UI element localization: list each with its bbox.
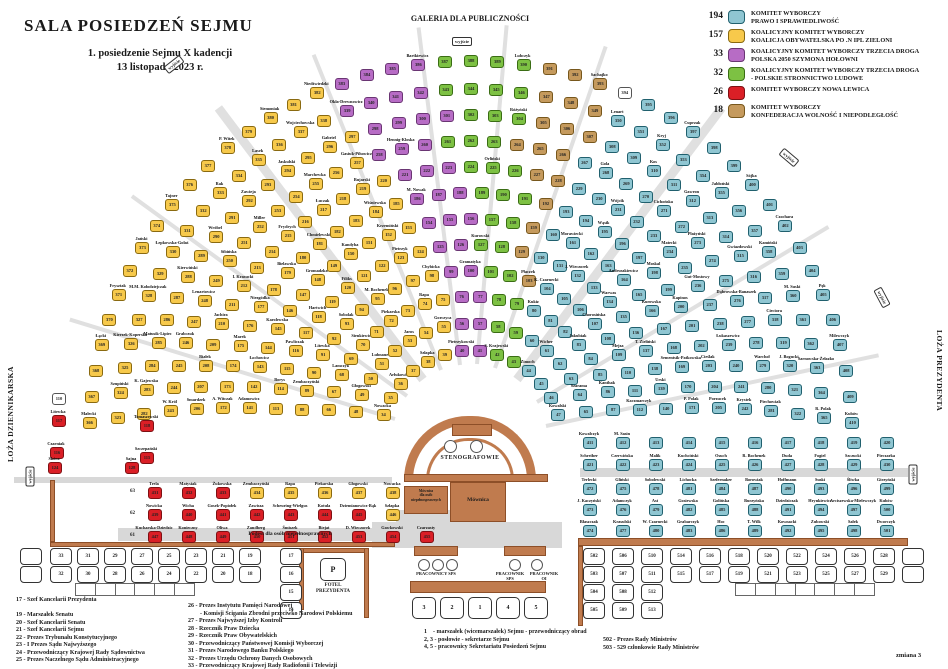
government-notes: 502 - Prezes Rady Ministrów 503 - 529 cz… [603,637,699,652]
seat: 170 [681,381,695,393]
seat-name-label: T. Zieliński [635,339,656,344]
seat-name-label: Kaczmarczyk [626,398,651,403]
seat-name-label: Szczucki [845,453,861,458]
seat: 221 [398,169,412,181]
seat: 89 [300,385,314,397]
legend-label: KOMITET WYBORCZY NOWA LEWICA [751,86,869,94]
seat: 371 [112,289,126,301]
seat: 190 [496,189,510,201]
seat-name-label: Orliński [485,156,500,161]
seat-name-label: Karolewska [266,317,288,322]
seat: 392 [568,69,582,81]
government-seat-box: 528 [873,548,895,565]
seat-name-label: D. Wieczorek [346,525,371,530]
seat: 187 [432,189,446,201]
sejm-seating-chart: SALA POSIEDZEŃ SEJMU 1. posiedzenie Sejm… [0,0,948,669]
seat-name-label: Szłapka [420,350,435,355]
seat: 164 [617,274,631,286]
seat: 421 [583,459,597,471]
seat: 320 [783,360,797,372]
seat: 158 [506,217,520,229]
president-chair-wall-top [299,548,369,553]
seat-name-label: M. Nowak [407,187,426,192]
legend-label: KOALICYJNY KOMITET WYBORCZY KOALICJA OBY… [751,29,892,44]
seat-name-label: Filiks [342,276,352,281]
government-seat-box: 512 [641,584,663,601]
seat-name-label: Małecki [81,411,96,416]
seat: 142 [247,381,261,393]
seat-name-label: Kownacki [778,519,797,524]
seat: 272 [675,221,689,233]
seat: 348 [564,97,578,109]
seat-name-label: K. Gajewska [134,378,158,383]
seat: 188 [453,187,467,199]
legend-entry: 32KOALICYJNY KOMITET WYBORCZY TRZECIA DR… [697,67,947,82]
seat: 325 [118,362,132,374]
seat: 84 [584,353,598,365]
seat: 405 [816,289,830,301]
seat: 110 [52,393,66,405]
seat: 412 [616,437,630,449]
seat: 288 [181,271,195,283]
seat: 130 [534,252,548,264]
seat: 284 [145,360,159,372]
seat: 248 [198,295,212,307]
seat-name-label: Kurowski [471,233,489,238]
seat-name-label: Hartwich [309,305,326,310]
seat-name-label: Pęk [819,283,826,288]
seat: 398 [707,142,721,154]
seat: 114 [274,383,288,395]
seat: 76 [455,291,469,303]
seat: 228 [551,175,565,187]
seat: 432 [182,487,196,499]
official-seat-box: 18 [239,566,261,583]
government-seat-box: 517 [699,566,721,583]
seat: 234 [663,246,677,258]
seat: 152 [382,229,396,241]
legend-label: KOALICYJNY KOMITET WYBORCZY TRZECIA DROG… [751,67,919,82]
seat-name-label: Wicha [182,503,194,508]
rostrum-bar [404,474,548,482]
seat: 220 [377,175,391,187]
seat-name-label: Bujarski [354,177,370,182]
seat: 193 [559,206,573,218]
exit-label: wyjście [873,287,890,309]
seat-name-label: Kierwiński [177,265,197,270]
seat: 112 [633,404,647,416]
seat: 326 [124,338,138,350]
seat: 126 [454,239,468,251]
seat: 134 [603,296,617,308]
seat: 420 [880,437,894,449]
seat: 110 [621,367,635,379]
seat-name-label: Rak [216,181,224,186]
seat-name-label: Czarniak [47,441,64,446]
seat-name-label: Gorczyca [434,315,451,320]
seat: 218 [336,193,350,205]
seat: 241 [734,381,748,393]
seat: 256 [329,167,343,179]
seat-name-label: Kryj [657,133,666,138]
seat: 391 [543,63,557,75]
accessible-podest-label: Podest dla osób niepełnosprawnych [190,531,390,537]
government-seat-box: 511 [641,566,663,583]
seat: 198 [647,267,661,279]
seat: 140 [659,403,673,415]
seat: 292 [242,195,256,207]
seat: 34 [377,409,391,421]
seat-name-label: Jabłoński [712,181,730,186]
seat-name-label: Czerwińska [611,453,633,458]
seat-name-label: Milewczyk [829,333,849,338]
seat: 159 [526,222,540,234]
seat: 362 [804,338,818,350]
seat: 70 [356,339,370,351]
seat: 409 [843,391,857,403]
seat-name-label: Wróbel [208,225,222,230]
seat-name-label: Wąsik [598,220,610,225]
seat: 80 [527,305,541,317]
seat-name-label: M. Suski [784,284,800,289]
government-seat-box-blank [902,548,924,565]
presidium-seat-box: 1 [468,597,492,619]
sps-worker-seat [509,559,521,571]
seat: 157 [485,214,499,226]
seat: 482 [682,504,696,516]
seat: 402 [778,220,792,232]
seat: 365 [817,412,831,424]
seat-name-label: Pieczarka [877,453,895,458]
seat: 78 [492,294,506,306]
seat: 121 [357,270,371,282]
seat-name-label: Krystek [737,397,752,402]
seat: 161 [566,237,580,249]
seat: 396 [664,112,678,124]
seat-name-label: Arciszewska-Mielewczyk [830,498,876,503]
seat-name-label: Gramatyka [459,259,480,264]
seat: 266 [556,149,570,161]
seat-name-label: Sachajko [591,72,608,77]
seat-name-label: W. Król [162,399,177,404]
seat: 137 [639,345,653,357]
government-seat-box: 502 [583,548,605,565]
seat: 389 [490,56,504,68]
seat: 176 [243,320,257,332]
seat: 199 [661,284,675,296]
seat: 291 [225,212,239,224]
seat-name-label: W. Czarnecki [643,519,668,524]
government-seat-box: 507 [612,566,634,583]
seat-name-label: Gola [600,161,609,166]
seat-name-label: Trela [149,481,159,486]
legend-count: 194 [697,10,723,23]
seat: 352 [656,139,670,151]
row-number-label: 61 [130,533,135,538]
seat: 332 [196,205,210,217]
official-seat-box-blank [20,548,42,565]
seat: 243 [164,405,178,417]
seat: 237 [703,299,717,311]
seat-name-label: Kos [650,159,657,164]
seat: 90 [307,367,321,379]
seat-name-label: Urski [655,377,665,382]
seat: 478 [649,483,663,495]
seat: 355 [715,187,729,199]
seat-name-label: Miller [254,215,265,220]
seat: 124 [48,462,62,474]
legend-entry: 157KOALICYJNY KOMITET WYBORCZY KOALICJA … [697,29,947,44]
seat: 184 [369,206,383,218]
official-seat-box: 25 [158,548,180,565]
seat-name-label: Jaros [404,329,414,334]
seat: 349 [588,105,602,117]
seat: 416 [748,437,762,449]
seat-name-label: Marchewka [304,172,326,177]
seat: 364 [814,387,828,399]
seat: 386 [411,59,425,71]
seat: 138 [648,363,662,375]
seat: 324 [114,387,128,399]
row-number-label: 62 [130,511,135,516]
official-seat-box: 20 [212,566,234,583]
seat: 304 [512,113,526,125]
seat: 91 [316,349,330,361]
seat-name-label: M. Bochenek [364,287,388,292]
seat-name-label: Cichońska [654,199,673,204]
seat-name-label: Szczepański [135,446,157,451]
seat: 45 [534,378,548,390]
seat: 417 [781,437,795,449]
sps-staff-seat [446,559,458,571]
seat-name-label: Śmiszek [282,525,297,530]
seat: 214 [265,246,279,258]
seat: 342 [414,87,428,99]
seat: 445 [352,509,366,521]
seat-name-label: Duda [782,453,792,458]
seat-name-label: Jaskulski [278,159,295,164]
seat: 139 [654,383,668,395]
seat: 136 [629,327,643,339]
seat: 119 [325,296,339,308]
seat-name-label: Nowacka [384,481,401,486]
seat: 123 [394,252,408,264]
seat-name-label: Zawisza [248,503,263,508]
seat: 102 [503,270,517,282]
seat: 488 [748,504,762,516]
seat: 115 [140,452,154,464]
seat: 341 [389,91,403,103]
seat: 305 [536,117,550,129]
seat: 40 [455,345,469,357]
seat: 244 [167,382,181,394]
seat: 379 [242,126,256,138]
seat: 224 [464,161,478,173]
seat: 120 [341,282,355,294]
legend: 194KOMITET WYBORCZY PRAWO I SPRAWIEDLIWO… [697,10,947,123]
seat: 286 [160,314,174,326]
official-seat-box-blank [20,566,42,583]
president-chair: P [320,558,346,581]
seat-name-label: R. Polak [815,406,831,411]
seat: 185 [389,198,403,210]
seat-name-label: Szefernaker [710,477,732,482]
seat: 455 [420,531,434,543]
seat: 245 [172,360,186,372]
seat-name-label: Kubów [845,411,858,416]
seat: 298 [368,123,382,135]
seat: 44 [522,365,536,377]
seat: 497 [847,504,861,516]
seat-name-label: Porzucek [709,396,726,401]
seat: 39 [438,349,452,361]
seat: 217 [317,204,331,216]
seat: 334 [232,170,246,182]
seat-name-label: Sobolak [339,312,354,317]
seat: 361 [796,314,810,326]
seat: 249 [209,275,223,287]
seat: 495 [814,525,828,537]
seat: 107 [588,318,602,330]
seat-name-label: Cieciora [766,308,782,313]
official-seat-box: 32 [50,566,72,583]
seat-name-label: Nowicka [146,503,162,508]
seat: 382 [310,87,324,99]
seat: 258 [372,149,386,161]
seat-name-label: Łuczak [316,198,330,203]
seat: 226 [508,165,522,177]
government-seat-box: 520 [757,548,779,565]
seat: 316 [747,271,761,283]
seat: 429 [847,459,861,471]
seat: 273 [691,237,705,249]
seat: 415 [715,437,729,449]
seat: 380 [264,112,278,124]
seat-name-label: Kowalczyk [579,431,599,436]
seat: 37 [406,365,420,377]
seat: 255 [309,178,323,190]
seat: 55 [437,321,451,333]
seat-name-label: Zandberg [247,525,265,530]
seat: 149 [327,260,341,272]
government-seat-box: 514 [670,548,692,565]
seat: 299 [392,117,406,129]
seat-name-label: Matecki [661,240,676,245]
official-seat-box: 19 [239,548,261,565]
seat: 186 [410,193,424,205]
seat-name-label: Żukowska [212,481,231,486]
sps-staff-table [414,546,458,556]
seat: 264 [510,139,524,151]
seat: 222 [420,165,434,177]
seat: 433 [216,487,230,499]
seat: 492 [781,525,795,537]
seat-name-label: Kuchciński [678,453,699,458]
seat-name-label: Krzemiński [377,223,398,228]
official-seat-box: 29 [104,548,126,565]
seat: 343 [439,84,453,96]
seat: 383 [335,78,349,90]
seat-name-label: Adamczyk [612,498,632,503]
seat: 397 [686,126,700,138]
seat-name-label: Terlecki [582,477,597,482]
government-seat-box: 523 [786,566,808,583]
seat: 308 [605,141,619,153]
seat-name-label: Hrynkiewicz [808,498,831,503]
seat-name-label: Gosek-Popiołek [208,503,237,508]
seat: 346 [514,87,528,99]
seat-name-label: Sarnowska-Żełazko [798,356,834,361]
seat: 359 [775,268,789,280]
seat-name-label: Jański [135,236,147,241]
seat-name-label: Fogiel [814,453,825,458]
government-seat-box: 524 [815,548,837,565]
president-chair-label: FOTEL PREZYDENTA [304,583,362,596]
seat-name-label: S. Krajewski [484,343,508,348]
seat-name-label: Gromadzka [306,268,328,273]
legend-count: 18 [697,104,723,117]
seat-name-label: Biejat [319,525,330,530]
seat: 211 [225,299,239,311]
government-seat-box-blank [902,566,924,583]
seat: 354 [696,170,710,182]
seat: 167 [657,323,671,335]
seat-name-label: Morawiecki [561,231,583,236]
seat: 500 [880,504,894,516]
seat-name-label: Warwas [601,290,616,295]
seat: 388 [464,55,478,67]
legend-entry: 18KOMITET WYBORCZY KONFEDERACJA WOLNOŚĆ … [697,104,947,119]
seat: 270 [639,191,653,203]
seat: 49 [355,389,369,401]
seat-name-label: Adamowicz [238,396,259,401]
seat: 253 [271,205,285,217]
seat: 236 [691,280,705,292]
seat: 428 [814,459,828,471]
seat: 338 [317,115,331,127]
seat: 113 [269,403,283,415]
seat-name-label: Lenartowicz [192,289,215,294]
seat: 231 [611,204,625,216]
page-subtitle-date: 13 listopada 2023 r. [40,62,280,73]
seat-name-label: Frysztak [110,283,126,288]
legend-label: KOALICYJNY KOMITET WYBORCZY TRZECIA DROG… [751,48,919,63]
seat-name-label: Andruszkiewicz [609,268,638,273]
seat: 476 [616,504,630,516]
seat: 370 [102,314,116,326]
seat: 418 [814,437,828,449]
government-seat-box: 513 [641,602,663,619]
seat-name-label: Burzyńska [744,498,764,503]
seat-name-label: Kurowska [642,299,661,304]
seat-name-label: Dąbrowska-Banaszek [716,289,756,294]
seat: 205 [712,402,726,414]
seat-name-label: Płażyński [688,231,706,236]
seat: 71 [370,326,384,338]
seat: 431 [148,487,162,499]
seat-name-label: Szupiński [111,381,129,386]
seat-name-label: Dziemianowicz-Bąk [340,503,377,508]
seat-name-label: Schreiber [580,453,598,458]
legend-swatch [728,29,745,43]
seat-name-label: Borowiak [745,477,763,482]
seat: 315 [734,250,748,262]
government-seat-box: 505 [583,602,605,619]
official-seat-box: 33 [50,548,72,565]
seat-name-label: Gwiazdowski [727,244,752,249]
seat: 499 [880,483,894,495]
legend-swatch [728,67,745,81]
